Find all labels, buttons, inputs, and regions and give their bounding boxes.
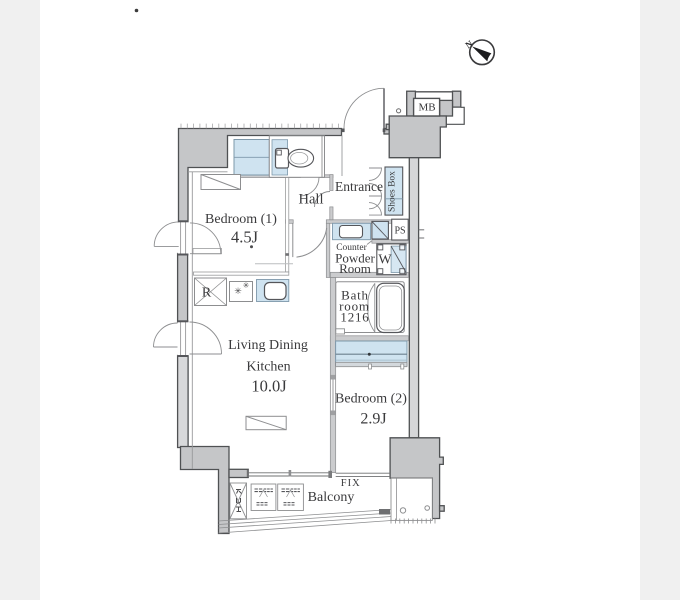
svg-text:Bedroom (1): Bedroom (1) — [205, 212, 277, 227]
svg-text:Entrance: Entrance — [335, 179, 383, 194]
svg-text:1216: 1216 — [340, 310, 369, 325]
svg-text:Hall: Hall — [299, 192, 324, 208]
svg-text:Living Dining: Living Dining — [228, 338, 308, 353]
svg-text:Room: Room — [339, 261, 371, 276]
svg-text:Kitchen: Kitchen — [246, 360, 290, 375]
svg-text:PS: PS — [394, 226, 405, 237]
svg-text:MB: MB — [418, 102, 435, 114]
svg-text:✳: ✳ — [243, 281, 250, 290]
svg-text:Shoes Box: Shoes Box — [387, 171, 397, 212]
svg-text:R: R — [202, 286, 212, 301]
svg-text:FIX: FIX — [341, 478, 361, 489]
svg-text:4.5J: 4.5J — [231, 228, 259, 247]
svg-text:W: W — [378, 253, 392, 268]
svg-text:Bedroom (2): Bedroom (2) — [335, 391, 407, 406]
svg-text:10.0J: 10.0J — [251, 377, 287, 396]
svg-text:✳: ✳ — [234, 286, 242, 296]
svg-text:Balcony: Balcony — [308, 490, 355, 505]
svg-text:2.9J: 2.9J — [360, 410, 386, 427]
